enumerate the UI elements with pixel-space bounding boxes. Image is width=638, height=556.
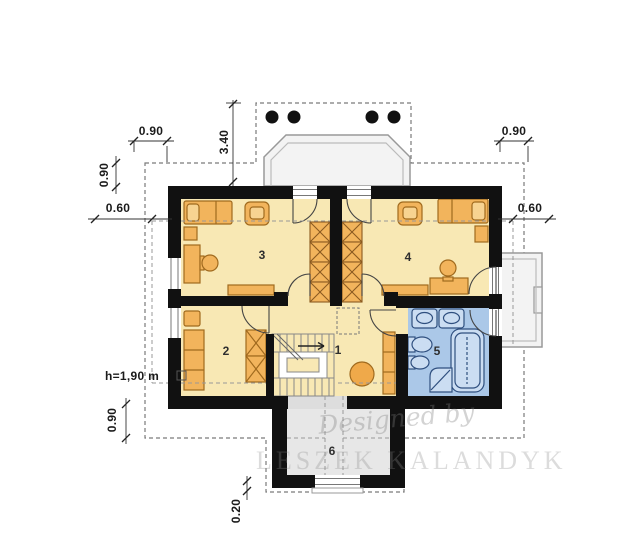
dim-label-top-right: 0.90 xyxy=(502,124,527,138)
front-balcony xyxy=(264,135,410,186)
watermark-name: LESZEK KALANDYK xyxy=(256,446,567,476)
floor-plan-canvas: 0.90 0.90 3.40 0.90 0.60 0.60 0.90 0.20 … xyxy=(0,0,638,556)
dim-label-lower-left: 0.90 xyxy=(105,408,119,433)
staircase xyxy=(272,334,334,396)
dim-label-mid-left: 0.60 xyxy=(106,201,131,215)
dim-label-upper-left: 0.90 xyxy=(97,163,111,188)
dim-label-top-left: 0.90 xyxy=(139,124,164,138)
side-balcony xyxy=(497,253,542,347)
headroom-label: h=1,90 m xyxy=(105,369,159,383)
room-label-3: 3 xyxy=(259,248,266,262)
dim-label-bottom-step: 0.20 xyxy=(229,499,243,524)
dim-label-mid-right: 0.60 xyxy=(518,201,543,215)
room-label-5: 5 xyxy=(434,344,441,358)
room-label-4: 4 xyxy=(405,250,412,264)
room-label-2: 2 xyxy=(223,344,230,358)
room-label-1: 1 xyxy=(335,343,342,357)
chimney-dots xyxy=(266,111,401,124)
dim-label-balcony-depth: 3.40 xyxy=(217,130,231,155)
